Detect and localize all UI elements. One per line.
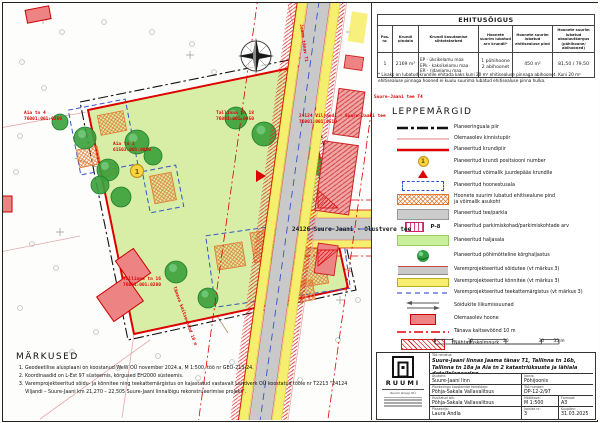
field-joonis: Joonis: Põhijoonis [521,373,593,384]
legend-label: Planeeringuala piir [454,125,594,131]
legend-label: Varemprojekteeritud sõidutee (vt märkus … [454,267,594,273]
field-label: Joonise nr: [524,408,556,412]
legend-label: Planeeritud hoonestusala [454,183,594,189]
logo-cell: RUUMI Ruumi Grupp OÜ [377,353,429,419]
legend-items: Planeeringuala piirOlemasolev kinnistupi… [392,124,594,350]
building-rights-title: EHITUSÕIGUS [378,15,595,26]
red-rect-symbol [392,314,454,325]
company-info-line [384,402,422,403]
field-mootkava: Mõõtkava: M 1:500 [521,395,558,406]
green-rect-symbol [392,235,454,246]
field-label: Planeerija: [432,408,519,412]
scalebar-tick-label: 10 [468,339,473,344]
field-label: Joonis: [524,375,591,379]
legend-item: Varemprojekteeritud kõnnitee (vt märkus … [392,278,594,287]
field-label: Huvitatud isik: [432,397,519,401]
yellow-bar-symbol [392,278,454,287]
table-footnote: * Lisaks on lubatud krundile ehitada kak… [378,72,592,84]
legend-label: Planeeritud põhimõtteline kõrghaljastus [454,253,594,259]
company-info-line [384,397,422,398]
legend-item: Planeeritud tee/parkla [392,209,594,220]
field-value: 3 [524,412,556,418]
field-formaat: Formaat: A3 [558,395,593,406]
field-huvitatud: Huvitatud isik: Põhja-Sakala Vallavalits… [429,395,521,406]
divider [382,389,424,390]
legend-label: Varemprojekteeritud kõnnitee (vt märkus … [454,279,594,285]
col-header: Hoonete suurim lubatud absoluutkõrgus (p… [553,26,595,53]
gray-bar-symbol [392,266,454,275]
table-header-row: Pos. nr. Krundi pindala Krundi kasutamis… [378,26,595,53]
blue-dashed-line-symbol [392,290,454,296]
plan-sheet: { "map": { "position_number": "1", "labe… [0,0,600,423]
company-name: Ruumi Grupp OÜ [390,391,415,395]
legend-item: Planeeritud haljasala [392,235,594,246]
info-panel: EHITUSÕIGUS Pos. nr. Krundi pindala Krun… [371,3,598,420]
dashdot-black-symbol [392,124,454,132]
legend-label: Hoonete suurim lubatud ehitisealune pind… [454,194,594,206]
legend-item: Planeeritud hoonestusala [392,181,594,191]
project-title-cell: Töö nimetus: Suure-Jaani linnas Jaama tä… [429,353,593,373]
legend-item: Sõidukite liikumissuunad [392,300,594,311]
orange-hatch-rect-symbol [392,194,454,205]
col-header: Krundi kasutamise sihtotstarbed [419,26,479,53]
company-logo-icon [392,356,414,378]
legend-item: Olemasolev hoone [392,314,594,325]
legend-item: Planeeringuala piir [392,124,594,132]
legend-item: Planeeritud krundipiir [392,146,594,154]
company-logo-text: RUUMI [386,379,420,387]
field-label: Kuupäev: [561,408,591,412]
col-header: Hoonete suurim lubatud ehitisealuse pind [513,26,553,53]
legend-label: Planeeritud krundi positsiooni number [454,159,594,165]
tree-symbol [392,249,454,263]
legend-label: Olemasolev hoone [454,316,594,322]
field-joonise-nr: Joonise nr: 3 [521,406,558,419]
scale-bar: 0510203035 m [434,331,564,347]
notes-list: Geodeetilise alusplaani on koostanud WeW… [16,365,360,396]
scalebar-labels: 0510203035 m [434,339,564,347]
legend-label: Planeeritud võimalik juurdepääs krundile [454,171,594,177]
legend-item: Olemasolev kinnistupiir [392,135,594,143]
field-too-number: Töö number: DP-12-2/97 [521,384,593,395]
legend-item: Hoonete suurim lubatud ehitisealune pind… [392,194,594,206]
legend-item: Varemprojekteeritud sõidutee (vt märkus … [392,266,594,275]
note-item: Varemprojekteeritud sõidu- ja kõnnitee n… [25,381,360,395]
legend-label: Varemprojekteeritud teekattemärgistus (v… [454,290,594,296]
field-value: Laura Andla [432,412,519,418]
field-korraldaja: Planeeringu koostamise korraldaja: Põhja… [429,384,521,395]
note-item: Koordinaadid on L-Est 97 süsteemis, kõrg… [25,373,360,380]
field-label: Asukoht: [432,375,519,379]
field-label: Töö nimetus: [432,354,591,358]
field-planeerija: Planeerija: Laura Andla [429,406,521,419]
legend-item: P-8Planeeritud parkimiskohad/parkimiskoh… [392,222,594,232]
legend-item: 1Planeeritud krundi positsiooni number [392,156,594,167]
field-label: Mõõtkava: [524,397,556,401]
legend-label: Olemasolev kinnistupiir [454,136,594,142]
position-number-text: 1 [135,168,140,176]
note-item: Geodeetilise alusplaani on koostanud WeW… [25,365,360,372]
scalebar-tick-label: 5 [451,339,454,344]
scalebar-tick-label: 20 [503,339,508,344]
pos-circle-symbol: 1 [392,156,454,167]
north-arrow-icon [238,38,274,74]
field-label: Töö number: [524,386,591,390]
parking-symbol: P-8 [392,222,454,232]
field-label: Formaat: [561,397,591,401]
gray-rect-symbol [392,209,454,220]
col-header: Krundi pindala [393,26,419,53]
title-block: RUUMI Ruumi Grupp OÜ Töö nimetus: Suure-… [376,352,596,420]
red-triangle-symbol [392,170,454,178]
arrows-symbol [392,300,454,311]
notes-section: MÄRKUSED Geodeetilise alusplaani on koos… [16,352,360,397]
legend-label: Sõidukite liikumissuunad [454,303,594,309]
legend-label: Planeeritud tee/parkla [454,211,594,217]
field-label: Planeeringu koostamise korraldaja: [432,386,519,390]
field-kuupaev: Kuupäev: 31.03.2025 [558,406,593,419]
project-title: Suure-Jaani linnas Jaama tänav T1, Talli… [432,358,591,373]
legend-label: Planeeritud parkimiskohad/parkimiskohtad… [454,224,594,230]
field-asukoht: Asukoht: Suure-Jaani linn [429,373,521,384]
company-info-line [384,405,422,406]
blue-dashed-rect-symbol [392,181,454,191]
notes-heading: MÄRKUSED [16,352,360,362]
scalebar-tick-label: 0 [434,339,437,344]
legend: LEPPEMÄRGID Planeeringuala piirOlemasole… [392,107,594,352]
legend-heading: LEPPEMÄRGID [392,107,594,117]
field-value: 31.03.2025 [561,412,591,418]
legend-item: Planeeritud põhimõtteline kõrghaljastus [392,249,594,263]
col-header: Pos. nr. [378,26,393,53]
legend-item: Planeeritud võimalik juurdepääs krundile [392,170,594,178]
thin-pink-line-symbol [392,135,454,143]
company-info-line [384,399,422,400]
scalebar-tick-label: 30 [539,339,544,344]
scalebar-tick-label: 35 m [553,339,564,344]
plot-position-marker: 1 [131,165,144,178]
thick-red-line-symbol [392,146,454,154]
legend-item: Varemprojekteeritud teekattemärgistus (v… [392,289,594,297]
building-rights-table: EHITUSÕIGUS Pos. nr. Krundi pindala Krun… [377,14,595,78]
col-header: Hoonete suurim lubatud arv krundil* [479,26,513,53]
legend-label: Planeeritud krundipiir [454,147,594,153]
legend-label: Planeeritud haljasala [454,238,594,244]
